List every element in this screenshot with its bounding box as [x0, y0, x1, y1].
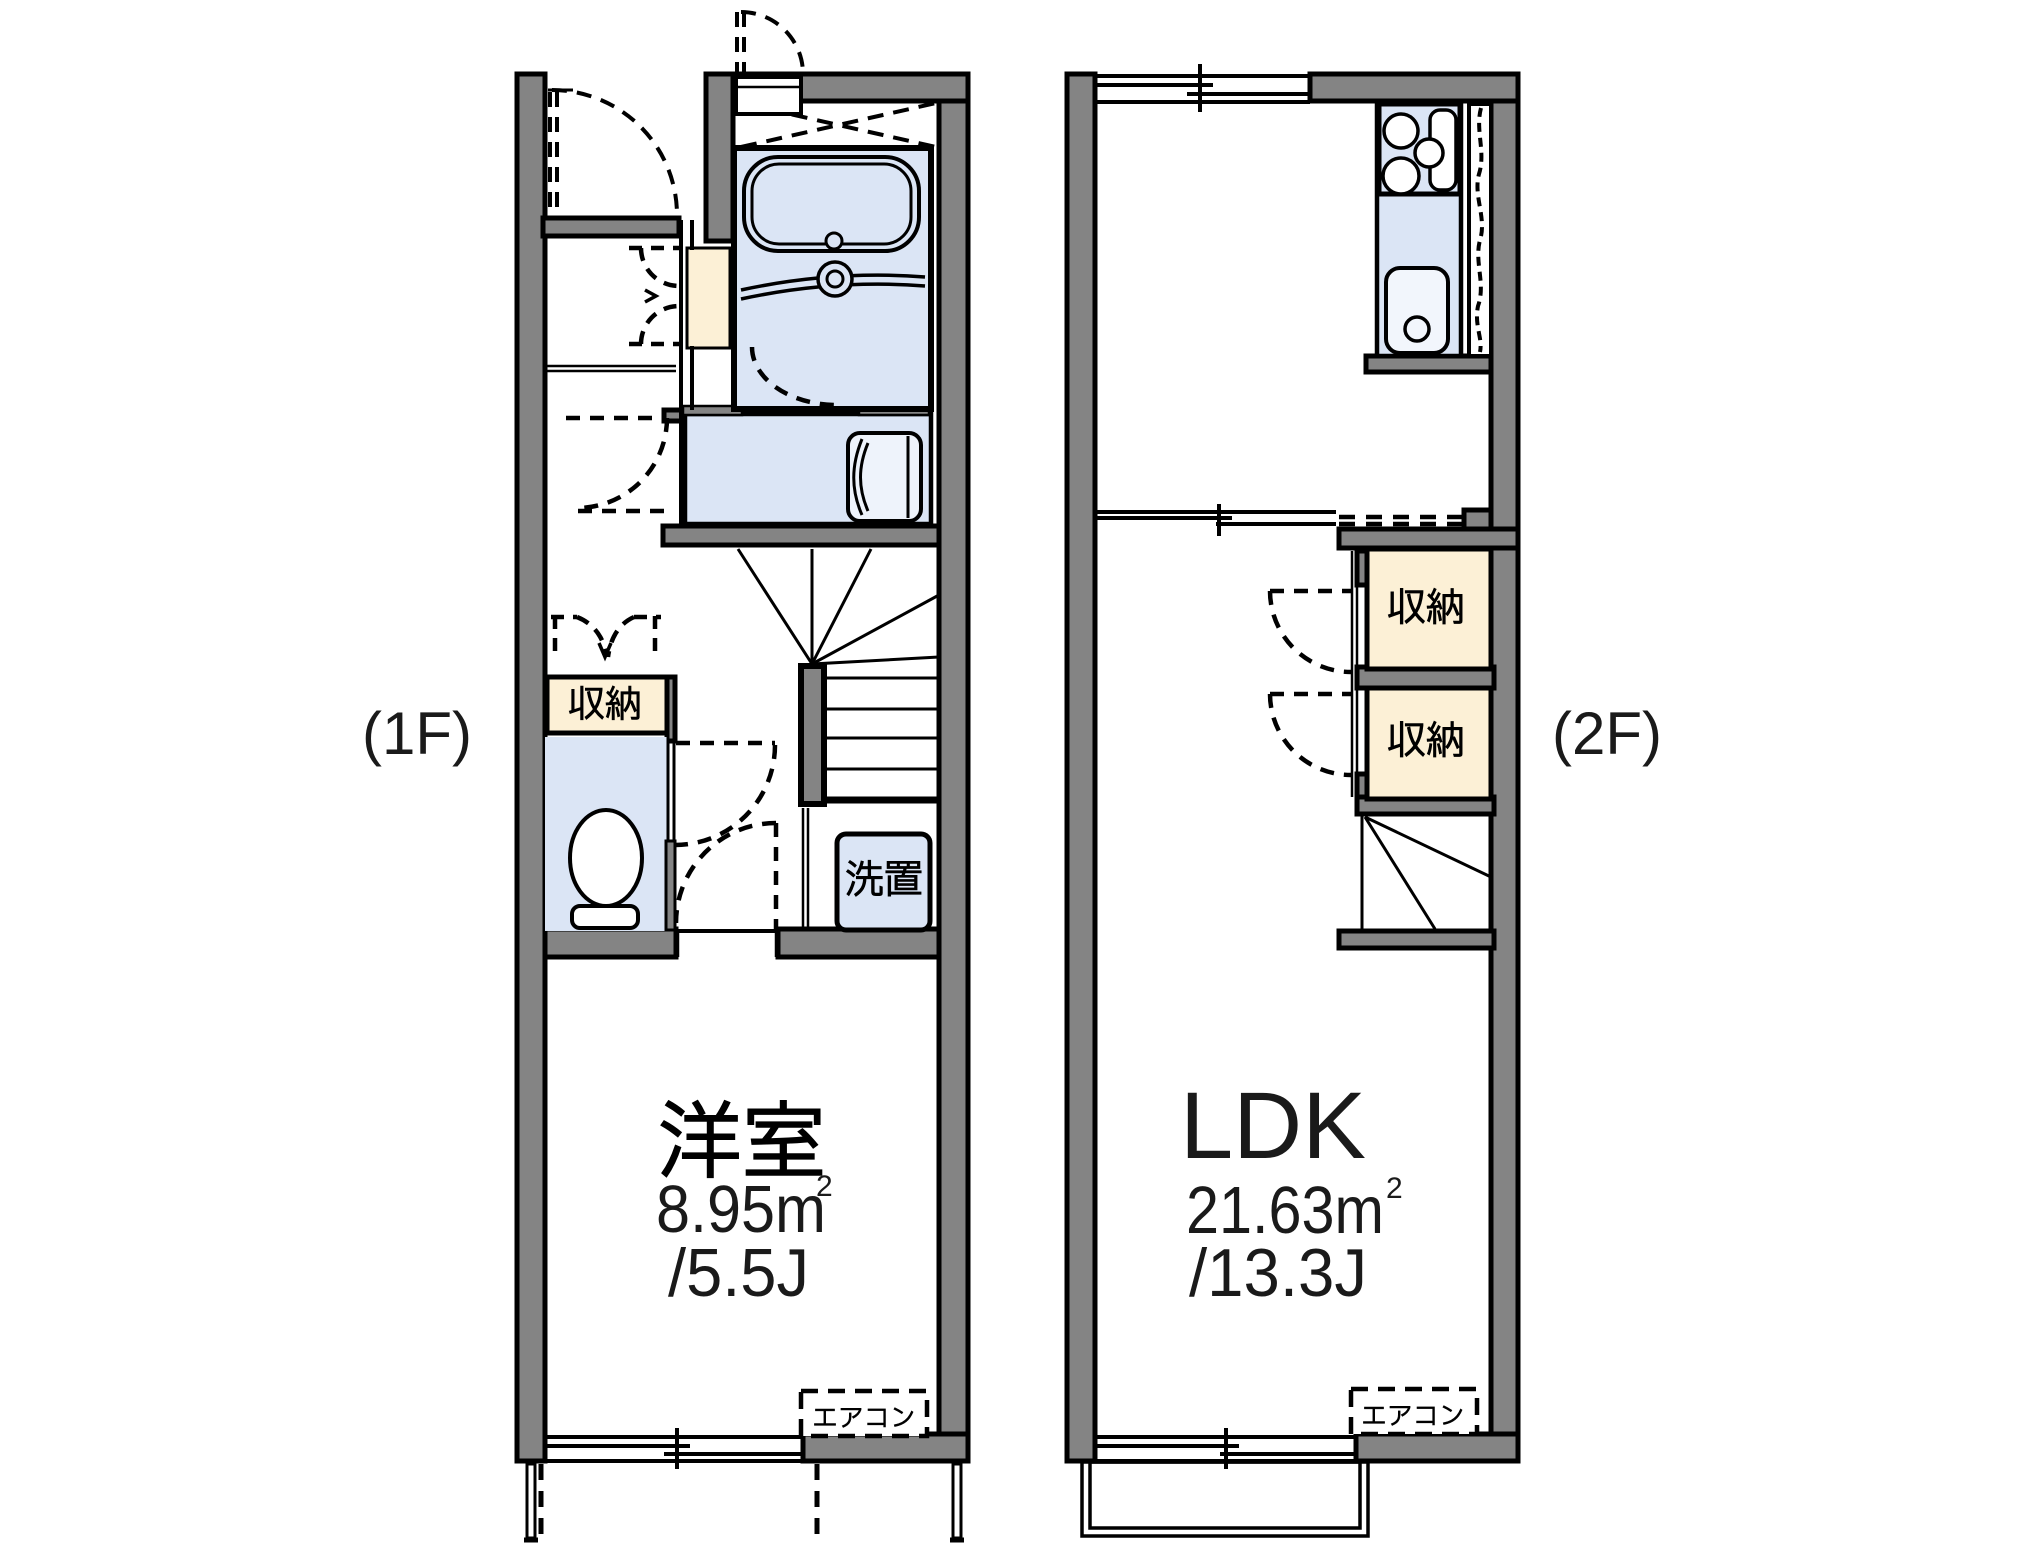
svg-text:/5.5J: /5.5J — [668, 1235, 809, 1311]
svg-text:2: 2 — [1386, 1172, 1403, 1205]
svg-text:/13.3J: /13.3J — [1189, 1235, 1367, 1311]
svg-text:(1F): (1F) — [362, 700, 472, 767]
svg-text:LDK: LDK — [1180, 1073, 1366, 1179]
svg-text:2: 2 — [816, 1170, 833, 1203]
svg-text:(2F): (2F) — [1552, 700, 1662, 767]
